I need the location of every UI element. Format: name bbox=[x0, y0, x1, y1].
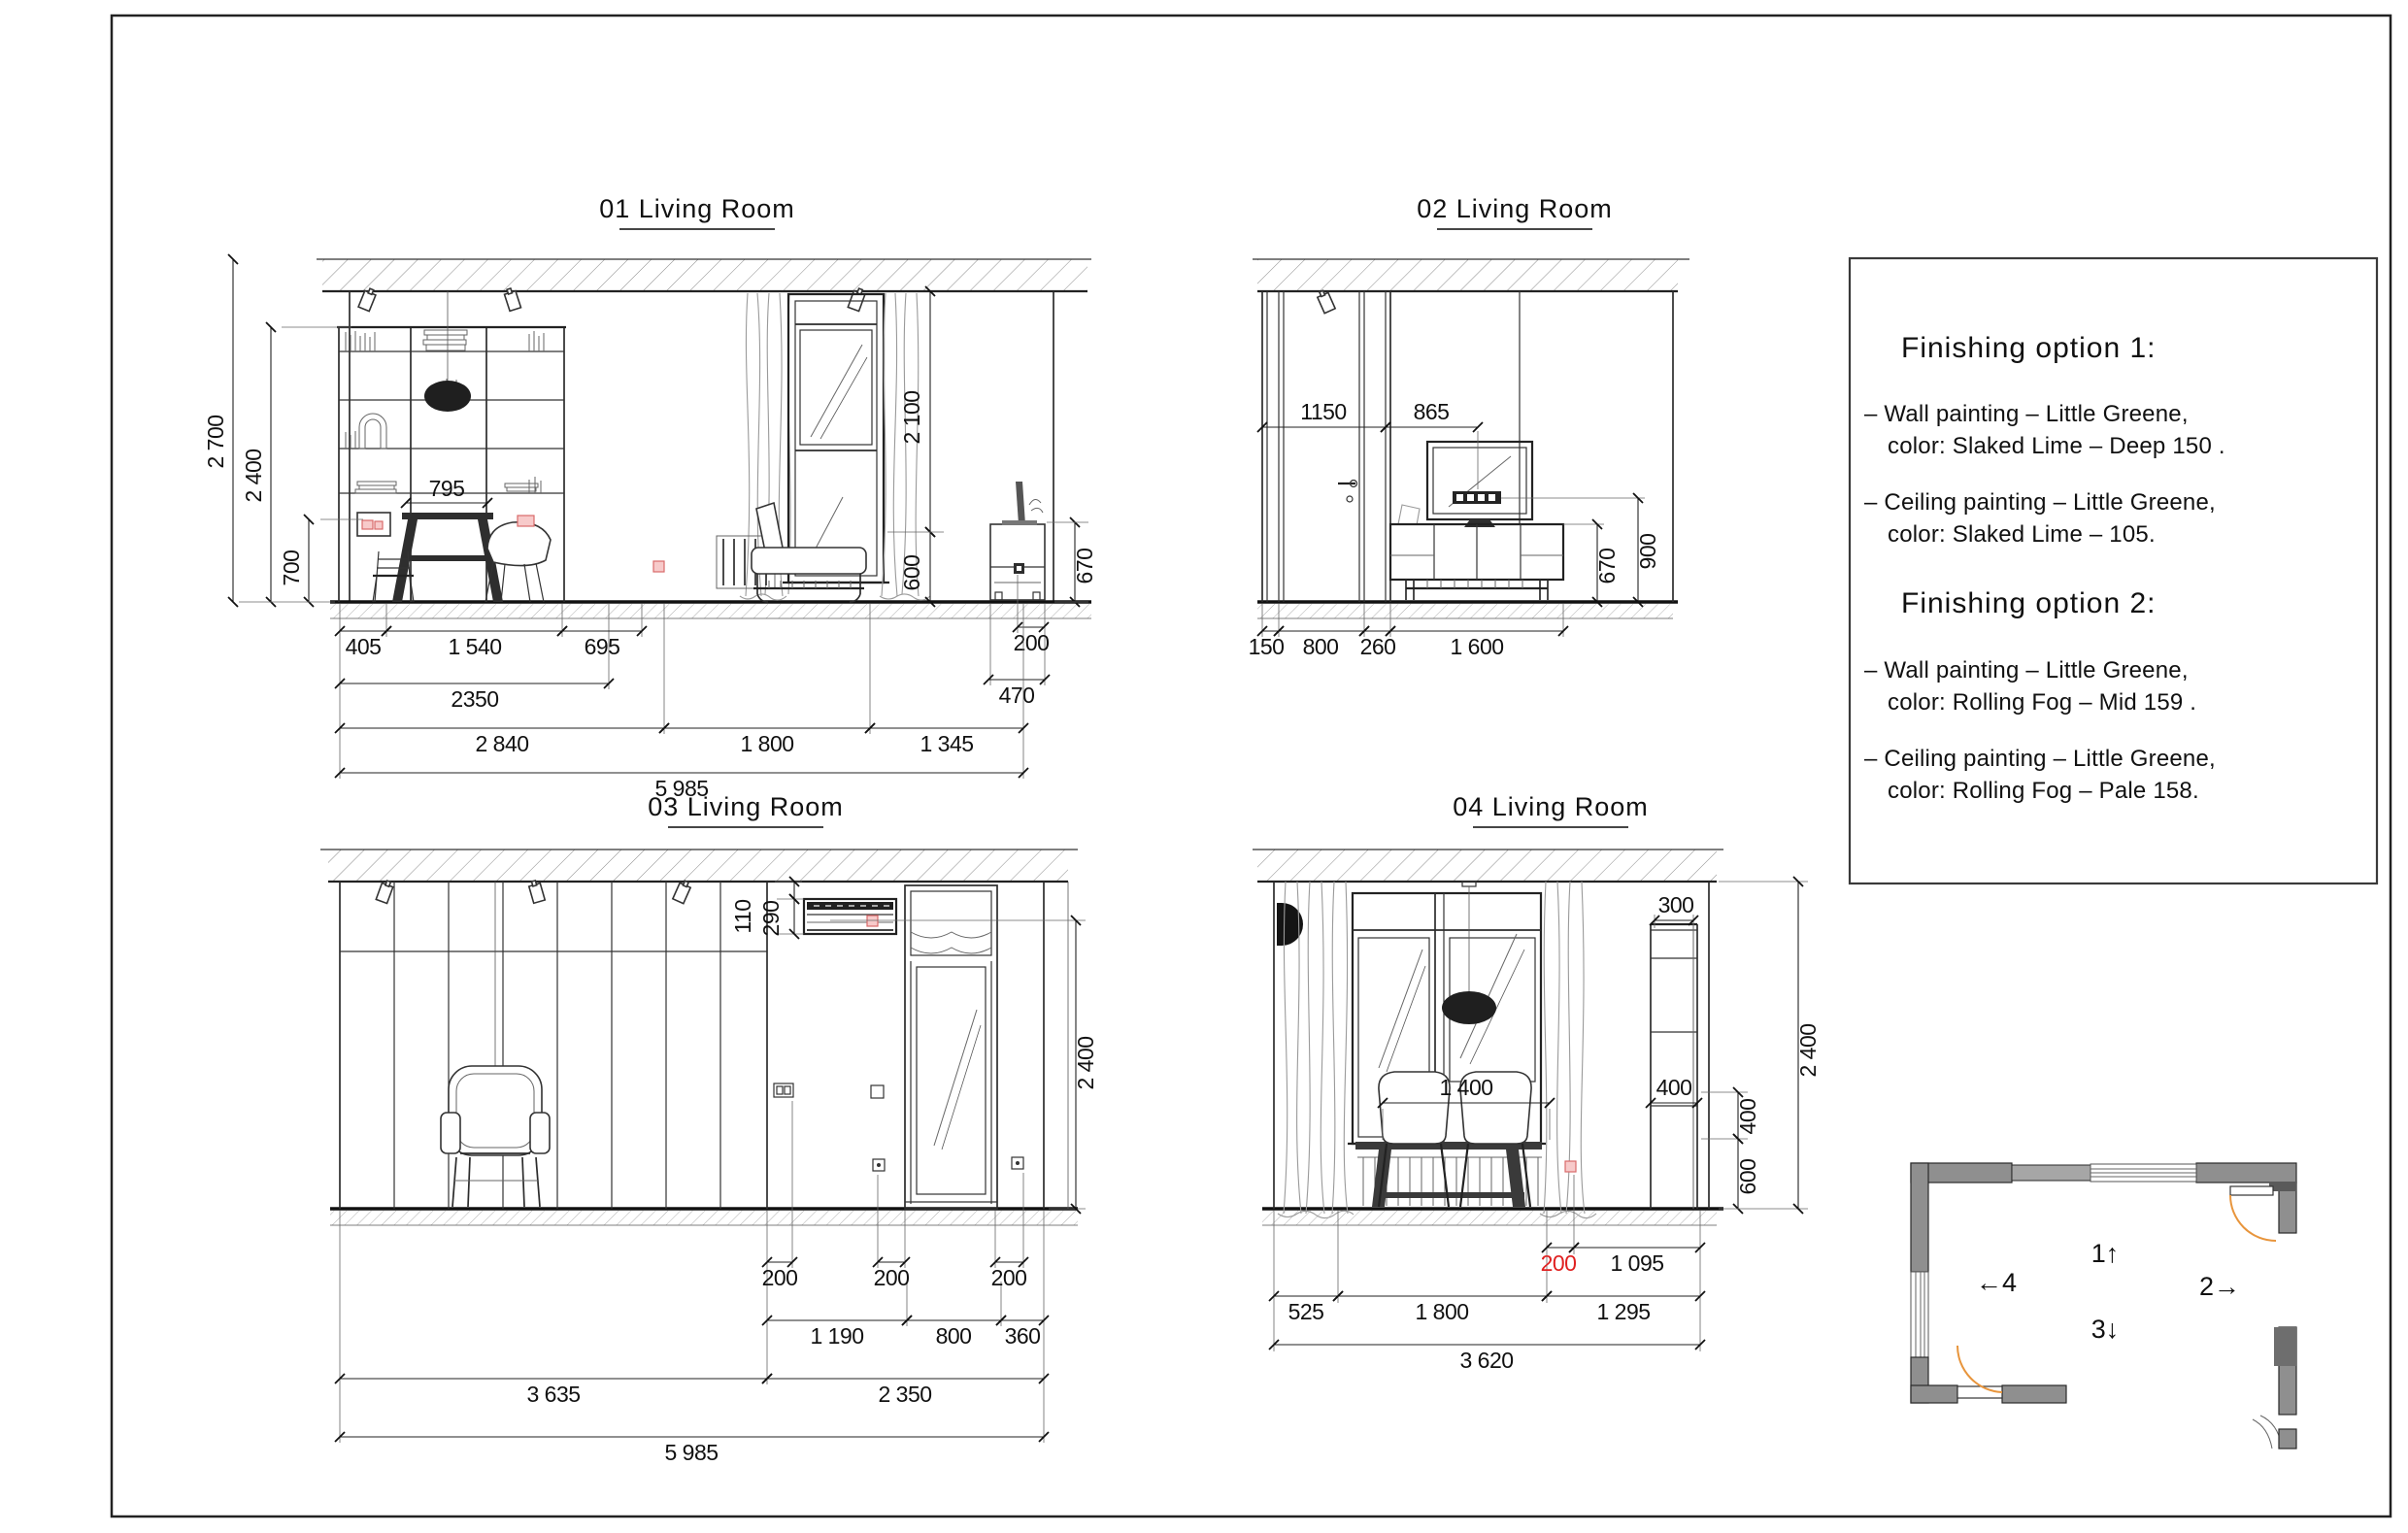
notes-title-1: Finishing option 1: bbox=[1901, 332, 2157, 364]
elevation-01-title: 01 Living Room bbox=[599, 194, 795, 223]
dim-800: 800 bbox=[1303, 634, 1339, 659]
dim-2400: 2 400 bbox=[241, 449, 266, 502]
socket-marker bbox=[518, 516, 534, 526]
window bbox=[783, 294, 889, 583]
elevation-03: 03 Living Room bbox=[320, 792, 1098, 1465]
dim-1345: 1 345 bbox=[920, 731, 973, 756]
elevation-01: 01 Living Room bbox=[203, 194, 1097, 801]
dim-360: 360 bbox=[1005, 1323, 1041, 1349]
plan-balcony-door bbox=[2253, 1416, 2296, 1449]
dim-800: 800 bbox=[936, 1323, 972, 1349]
dim-1400: 1 400 bbox=[1439, 1075, 1492, 1100]
plan-window-top bbox=[2090, 1164, 2196, 1182]
ceiling-slab bbox=[1253, 259, 1689, 291]
dim-2700: 2 700 bbox=[203, 415, 228, 468]
dim-110: 110 bbox=[730, 899, 755, 933]
dim-1190: 1 190 bbox=[810, 1323, 863, 1349]
elevation-02-dims: 1150 865 670 900 150 800 260 1 600 bbox=[1249, 399, 1660, 659]
ceiling-spotlight bbox=[673, 880, 692, 904]
dim-150: 150 bbox=[1249, 634, 1285, 659]
elevation-03-title: 03 Living Room bbox=[648, 792, 844, 821]
ac-unit bbox=[804, 899, 896, 934]
notes-title-2: Finishing option 2: bbox=[1901, 587, 2157, 619]
dim-2350: 2 350 bbox=[878, 1382, 931, 1407]
floor bbox=[330, 602, 1091, 618]
dim-400w: 400 bbox=[1656, 1075, 1692, 1100]
dim-cab-200: 200 bbox=[1014, 630, 1050, 655]
dim-2840: 2 840 bbox=[475, 731, 528, 756]
elevation-03-dims: 110 290 2 400 200 200 200 1 bbox=[340, 882, 1098, 1465]
dim-200a: 200 bbox=[762, 1265, 798, 1290]
floor-plan: 1↑ 2→ 3↓ ←4 bbox=[1911, 1163, 2296, 1449]
floor bbox=[330, 1209, 1078, 1225]
elevation-04-dims: 300 1 400 400 400 600 2 400 200 bbox=[1274, 882, 1821, 1373]
elevation-04: 04 Living Room bbox=[1253, 792, 1821, 1373]
dim-1800: 1 800 bbox=[1415, 1299, 1468, 1324]
dim-cab-470: 470 bbox=[999, 683, 1035, 708]
dim-1095: 1 095 bbox=[1610, 1250, 1663, 1276]
elevation-04-title: 04 Living Room bbox=[1453, 792, 1649, 821]
laptop-ghost bbox=[1398, 505, 1420, 525]
floor bbox=[1257, 602, 1678, 618]
dim-670: 670 bbox=[1072, 549, 1097, 584]
dim-1540: 1 540 bbox=[448, 634, 501, 659]
dim-1295: 1 295 bbox=[1596, 1299, 1650, 1324]
dim-3635: 3 635 bbox=[526, 1382, 580, 1407]
door bbox=[1279, 291, 1364, 602]
sheet-svg: 01 Living Room bbox=[0, 0, 2408, 1533]
plan-marker-2: 2→ bbox=[2199, 1272, 2240, 1301]
socket-marker bbox=[1565, 1161, 1576, 1172]
socket-icon-inner bbox=[1017, 566, 1021, 571]
dim-695: 695 bbox=[585, 634, 620, 659]
dim-200-red: 200 bbox=[1541, 1250, 1577, 1276]
dim-795: 795 bbox=[429, 476, 465, 501]
dim-5985: 5 985 bbox=[664, 1440, 718, 1465]
dim-405: 405 bbox=[346, 634, 382, 659]
dim-700: 700 bbox=[279, 550, 304, 586]
note-line: – Ceiling painting – Little Greene, bbox=[1864, 746, 2216, 772]
elevation-02: 02 Living Room bbox=[1249, 194, 1689, 659]
note-line: color: Slaked Lime – 105. bbox=[1888, 521, 2156, 548]
dim-2100: 2 100 bbox=[899, 390, 924, 444]
note-line: – Wall painting – Little Greene, bbox=[1864, 657, 2189, 683]
arch-decor bbox=[359, 414, 386, 449]
artwork-red bbox=[362, 520, 373, 529]
socket-marker bbox=[653, 561, 664, 572]
note-line: color: Slaked Lime – Deep 150 . bbox=[1888, 433, 2225, 459]
plan-door-bottom-left bbox=[1957, 1346, 2002, 1398]
ceiling-slab bbox=[317, 259, 1091, 291]
plan-marker-3: 3↓ bbox=[2091, 1315, 2120, 1344]
elevation-02-title: 02 Living Room bbox=[1417, 194, 1613, 223]
plan-marker-4: ←4 bbox=[1976, 1268, 2017, 1297]
armchair bbox=[441, 1066, 550, 1207]
curtain-right bbox=[880, 293, 930, 600]
dim-1600: 1 600 bbox=[1450, 634, 1503, 659]
dim-670: 670 bbox=[1594, 549, 1620, 584]
dim-2350: 2350 bbox=[451, 686, 498, 712]
books bbox=[346, 331, 544, 493]
dim-300: 300 bbox=[1658, 892, 1694, 917]
ceiling-slab bbox=[320, 850, 1078, 882]
plan-cabinet bbox=[2274, 1327, 2296, 1366]
book-stacks bbox=[355, 330, 538, 493]
ceiling-spotlight bbox=[376, 880, 394, 904]
plan-door-top-right bbox=[2230, 1186, 2276, 1241]
ceiling-slab bbox=[1253, 850, 1723, 882]
wall-segment bbox=[2012, 1165, 2090, 1181]
ceiling-spotlight bbox=[1316, 289, 1335, 314]
shelf-unit bbox=[1651, 924, 1697, 1209]
plan-window-left bbox=[1911, 1272, 1928, 1357]
socket-marker bbox=[867, 916, 878, 926]
dim-2400: 2 400 bbox=[1073, 1036, 1098, 1089]
note-line: – Wall painting – Little Greene, bbox=[1864, 401, 2189, 427]
dim-1150: 1150 bbox=[1300, 399, 1346, 424]
dim-400v: 400 bbox=[1735, 1099, 1760, 1135]
tray bbox=[1002, 520, 1037, 525]
dim-600: 600 bbox=[899, 555, 924, 591]
dim-200b: 200 bbox=[874, 1265, 910, 1290]
dim-600v: 600 bbox=[1735, 1159, 1760, 1195]
dim-2400: 2 400 bbox=[1795, 1023, 1821, 1077]
sofa bbox=[752, 503, 866, 602]
small-chair bbox=[373, 551, 414, 602]
dim-865: 865 bbox=[1414, 399, 1450, 424]
dim-525: 525 bbox=[1288, 1299, 1324, 1324]
dim-260: 260 bbox=[1360, 634, 1396, 659]
note-line: color: Rolling Fog – Mid 159 . bbox=[1888, 689, 2196, 716]
note-line: color: Rolling Fog – Pale 158. bbox=[1888, 778, 2199, 804]
dim-3620: 3 620 bbox=[1459, 1348, 1513, 1373]
note-line: – Ceiling painting – Little Greene, bbox=[1864, 489, 2216, 516]
artwork-red bbox=[375, 521, 383, 529]
wardrobe-mirror bbox=[905, 885, 997, 1209]
finishing-notes: Finishing option 1: – Wall painting – Li… bbox=[1850, 258, 2377, 883]
plan-marker-1: 1↑ bbox=[2091, 1239, 2120, 1268]
dim-1800: 1 800 bbox=[740, 731, 793, 756]
wall-paneling bbox=[340, 882, 767, 1209]
dim-200c: 200 bbox=[991, 1265, 1027, 1290]
mirror bbox=[1016, 482, 1025, 524]
ceiling-spotlight bbox=[528, 880, 546, 903]
dim-290: 290 bbox=[758, 901, 784, 937]
drawing-sheet: 01 Living Room bbox=[0, 0, 2408, 1533]
plant bbox=[1029, 499, 1043, 513]
tv bbox=[1427, 442, 1532, 527]
dim-900: 900 bbox=[1635, 534, 1660, 570]
elevation-01-dims: 2 700 2 400 700 2 100 600 670 200 bbox=[203, 259, 1097, 801]
